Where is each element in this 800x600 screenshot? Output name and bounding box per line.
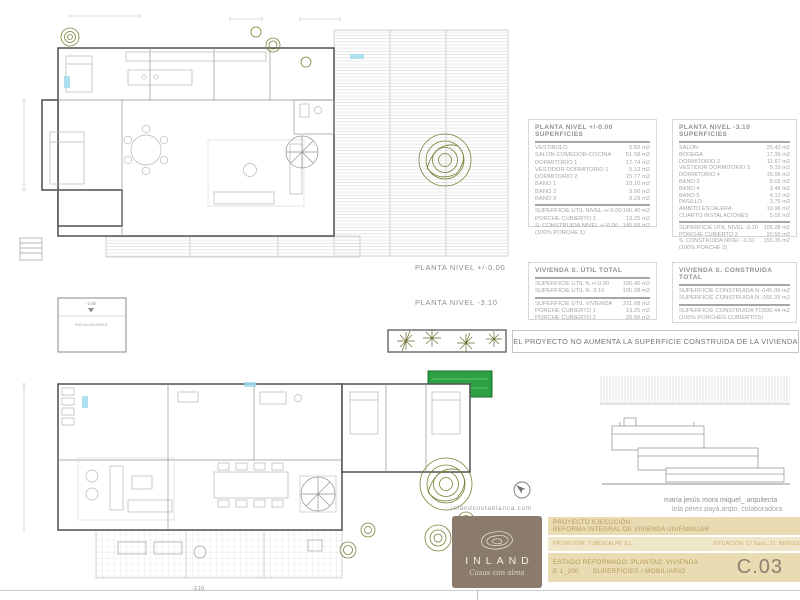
drawing-sheet: PLANTA NIVEL +/-0.00 PLANTA NIVEL -3.10 … [0,0,800,600]
table-row: SUPERFICIE CONSTRUIDA N.+/-0.00145.09 m2 [679,288,790,295]
website-url: inlandcostablanca.com [451,505,532,512]
rule [535,141,650,143]
table-vivienda-construida-total: VIVIENDA S. CONSTRUIDA TOTAL SUPERFICIE … [672,262,797,323]
walls [58,384,470,530]
table-totals: SUPERFICIE ÚTIL VIVIENDA211.68 m2PORCHE … [535,301,650,323]
built-row: S. CONSTRUIDA NIVEL +/-0.00145.09 m2 [535,223,650,230]
table-rows: SUPERFICIE ÚTIL N.+/-0.00106.40 m2SUPERF… [535,281,650,296]
table-totals: SUPERFICIE CONSTRUIDA TOTAL300.44 m2(100… [679,308,790,323]
total-row: PORCHE CUBIERTO 220.56 m2 [679,232,790,239]
titleblock-state-row: ESTADO REFORMADO: PLANTAS: VIVIENDA E 1_… [548,553,800,582]
table-row: VESTIDOR DORMITORIO 15.12 m2 [535,167,650,174]
table-row: BAÑO 54.13 m2 [679,193,790,200]
built-row: (100% PORCHE 2) [679,245,790,252]
table-title: PLANTA NIVEL +/-0.00 SUPERFICIES [535,124,650,138]
banner-text: EL PROYECTO NO AUMENTA LA SUPERFICIE CON… [513,337,797,346]
project-name: REFORMA INTEGRAL DE VIVIENDA UNIFAMILIAR [553,526,800,533]
sheet-border-tick [477,590,478,600]
total-row: PORCHE CUBIERTO 220.56 m2 [535,315,650,322]
table-row: SUPERFICIE ÚTIL N.+/-0.00106.40 m2 [535,281,650,288]
no-increase-banner: EL PROYECTO NO AUMENTA LA SUPERFICIE CON… [512,330,799,353]
table-vivienda-util-total: VIVIENDA S. ÚTIL TOTAL SUPERFICIE ÚTIL N… [528,262,657,320]
total-row: PORCHE CUBIERTO 113.25 m2 [535,308,650,315]
rule [535,204,650,206]
level-mark-246: -2.46 [86,301,97,306]
table-row: CUARTO INSTALACIONES5.02 m2 [679,213,790,220]
exterior-stair [20,238,42,260]
label-planta-nivel-0: PLANTA NIVEL +/-0.00 [415,263,505,272]
scale: E 1_100 [553,568,579,577]
rule [679,221,790,223]
table-row: VESTIBULO5.82 m2 [535,145,650,152]
north-arrow-icon [510,478,534,502]
rule [679,304,790,306]
table-row: SUPERFICIE ÚTIL N.-3.10105.28 m2 [535,288,650,295]
total-row: SUPERFICIE CONSTRUIDA TOTAL300.44 m2 [679,308,790,315]
table-rows: SUPERFICIE CONSTRUIDA N.+/-0.00145.09 m2… [679,288,790,303]
planter [388,329,506,352]
brand-name: INLAND [460,555,534,567]
table-row: DORMITORIO 311.67 m2 [679,159,790,166]
lower-floor-plan: -2.46 INSTALACIONES [18,288,518,596]
table-row: BAÑO 43.46 m2 [679,186,790,193]
sheet-code: C.03 [737,556,783,579]
inland-logo: INLAND Casas con alma [452,516,542,588]
total-row: (100% PORCHES CUBIERTOS) [679,315,790,322]
table-row: SALÓN25.43 m2 [679,145,790,152]
level-mark-310: -3.10 [192,586,204,592]
table-rows: VESTIBULO5.82 m2SALÓN-COMEDOR-COCINA51.5… [535,145,650,203]
rule [679,284,790,286]
total-row: PORCHE CUBIERTO 113.25 m2 [535,216,650,223]
table-row: ÁMBITO ESCALERA10.96 m2 [679,206,790,213]
table-row: BAÑO 33.29 m2 [535,196,650,203]
table-row: DORMITORIO 117.74 m2 [535,160,650,167]
state-column: ESTADO REFORMADO: PLANTAS: VIVIENDA E 1_… [553,559,737,576]
table-level0-superficies: PLANTA NIVEL +/-0.00 SUPERFICIES VESTIBU… [528,119,657,227]
built-row: S. CONSTRUIDA NIVEL -3.10155.35 m2 [679,238,790,245]
collaborator-credit: lola pérez payá.arqto. colaboradora [672,506,782,513]
sheet-bottom-border [0,590,800,591]
promoter: PROMOTOR: TUBISCALPE S.L. [553,541,634,547]
table-title: PLANTA NIVEL -3.10 SUPERFICIES [679,124,790,138]
total-row: SUPERFICIE ÚTIL NIVEL +/-0.00106.40 m2 [535,208,650,215]
titleblock-project-row: PROYECTO EJECUCIÓN: REFORMA INTEGRAL DE … [548,517,800,535]
logo-swirl-icon [476,528,518,554]
sheet-subtitle: SUPERFICIES / MOBILIARIO [593,568,685,577]
table-row: VESTIDOR DORMITORIO 35.19 m2 [679,165,790,172]
table-row: BAÑO 23.00 m2 [535,189,650,196]
table-totals: SUPERFICIE ÚTIL NIVEL -3.10105.28 m2PORC… [679,225,790,239]
walls [42,48,334,236]
built-row: (100% PORCHE 1) [535,230,650,237]
titleblock-promoter-row: PROMOTOR: TUBISCALPE S.L. SITUACIÓN: C/ … [548,537,800,551]
location: SITUACIÓN: C/ Sauc, 31. BENISSA [713,541,800,547]
installations-label: INSTALACIONES [75,323,108,327]
table-built: S. CONSTRUIDA NIVEL +/-0.00145.09 m2(100… [535,223,650,238]
total-row: SUPERFICIE ÚTIL VIVIENDA211.68 m2 [535,301,650,308]
table-row: BODEGA17.36 m2 [679,152,790,159]
table-level310-superficies: PLANTA NIVEL -3.10 SUPERFICIES SALÓN25.4… [672,119,797,237]
dimension-lines [22,384,26,530]
table-row: DORMITORIO 215.77 m2 [535,174,650,181]
table-rows: SALÓN25.43 m2BODEGA17.36 m2DORMITORIO 31… [679,145,790,220]
table-title: VIVIENDA S. ÚTIL TOTAL [535,267,650,274]
table-row: BAÑO 35.05 m2 [679,179,790,186]
table-title: VIVIENDA S. CONSTRUIDA TOTAL [679,267,790,281]
table-row: PASILLO3.75 m2 [679,199,790,206]
project-label: PROYECTO EJECUCIÓN: [553,519,800,526]
pergola-hatch [600,376,790,404]
installations-room: -2.46 INSTALACIONES [58,298,126,352]
elevation-sketch [594,362,798,504]
rule [679,141,790,143]
rule [535,297,650,299]
table-row: BAÑO 110.10 m2 [535,181,650,188]
table-row: SUPERFICIE CONSTRUIDA N.-3.10155.35 m2 [679,295,790,302]
upper-floor-plan [18,12,518,262]
rule [535,277,650,279]
table-row: DORMITORIO 415.06 m2 [679,172,790,179]
total-row: SUPERFICIE ÚTIL NIVEL -3.10105.28 m2 [679,225,790,232]
brand-tagline: Casas con alma [469,569,524,577]
table-row: SALÓN-COMEDOR-COCINA51.58 m2 [535,152,650,159]
architect-credit: maría jesús mora miquel_ arquitecta [664,497,777,504]
table-built: S. CONSTRUIDA NIVEL -3.10155.35 m2(100% … [679,238,790,252]
elevation-volumes [612,418,784,482]
spiral-stair [286,136,318,168]
table-totals: SUPERFICIE ÚTIL NIVEL +/-0.00106.40 m2PO… [535,208,650,223]
state-label: ESTADO REFORMADO: PLANTAS: VIVIENDA [553,559,737,568]
